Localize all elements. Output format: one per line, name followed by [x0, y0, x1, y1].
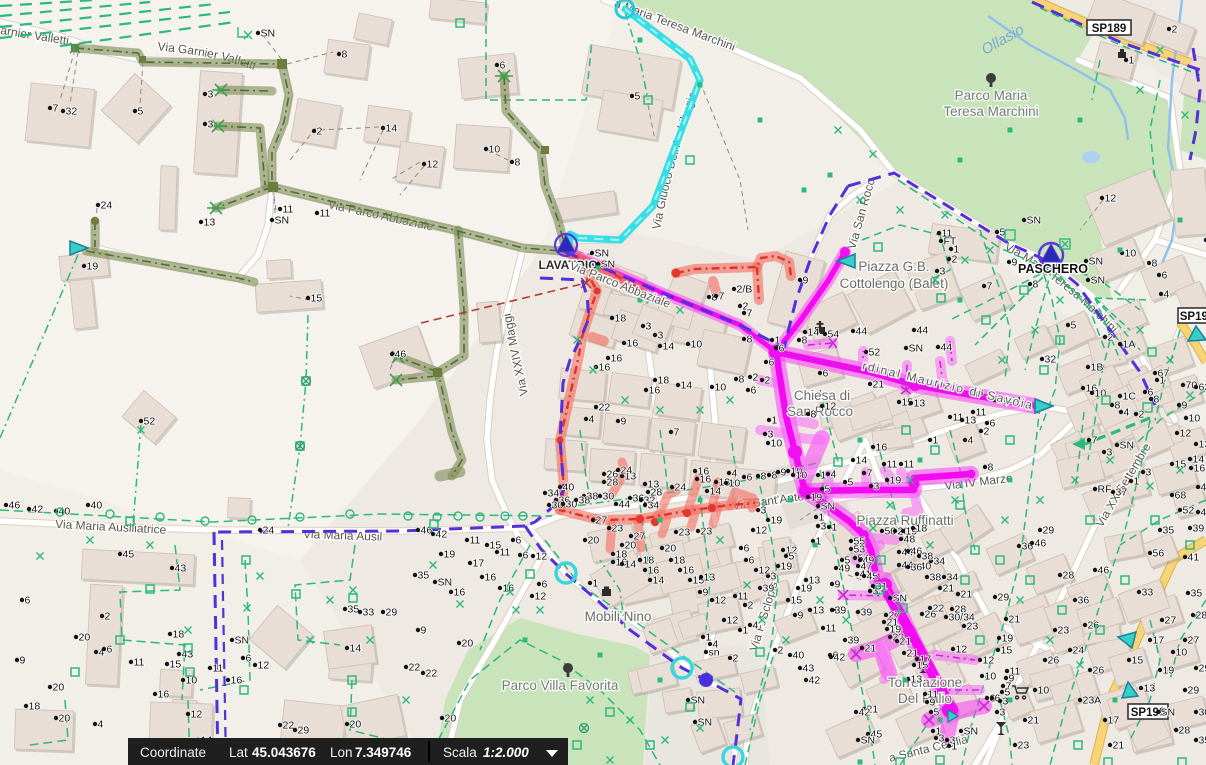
svg-text:1: 1 — [821, 470, 827, 482]
svg-text:46: 46 — [395, 349, 407, 361]
svg-text:20: 20 — [53, 682, 65, 694]
svg-text:13: 13 — [1199, 439, 1206, 451]
svg-text:11: 11 — [213, 663, 224, 675]
svg-text:23: 23 — [612, 523, 624, 535]
svg-text:16: 16 — [700, 474, 712, 486]
svg-text:3: 3 — [761, 505, 767, 517]
svg-text:13: 13 — [1144, 683, 1156, 695]
svg-text:43: 43 — [175, 563, 187, 575]
svg-text:16: 16 — [649, 385, 661, 397]
svg-text:10: 10 — [715, 382, 727, 394]
svg-text:14: 14 — [386, 123, 398, 135]
svg-text:9: 9 — [803, 275, 809, 287]
svg-text:23: 23 — [967, 621, 979, 633]
svg-text:2: 2 — [1108, 332, 1114, 344]
svg-text:7: 7 — [987, 281, 993, 293]
svg-text:8: 8 — [761, 471, 767, 483]
svg-text:4: 4 — [1164, 289, 1170, 301]
svg-text:6: 6 — [516, 535, 522, 547]
svg-text:11: 11 — [826, 623, 837, 635]
svg-text:3: 3 — [208, 89, 214, 101]
svg-text:8: 8 — [1115, 400, 1121, 412]
svg-text:6: 6 — [107, 644, 113, 656]
svg-text:21: 21 — [865, 643, 877, 655]
svg-text:SN: SN — [909, 343, 924, 355]
svg-text:9: 9 — [703, 587, 709, 599]
svg-text:1: 1 — [743, 625, 749, 637]
svg-text:2/B: 2/B — [737, 284, 753, 296]
svg-text:Piazza G.B.: Piazza G.B. — [858, 259, 929, 274]
svg-text:11: 11 — [887, 459, 898, 471]
svg-text:42: 42 — [32, 504, 44, 516]
svg-text:2: 2 — [733, 653, 739, 665]
svg-text:13: 13 — [911, 674, 923, 686]
svg-text:56: 56 — [1153, 548, 1165, 560]
svg-text:44: 44 — [856, 326, 868, 338]
svg-text:24: 24 — [1073, 645, 1085, 657]
svg-text:6: 6 — [1162, 270, 1168, 282]
svg-text:8: 8 — [1033, 279, 1039, 291]
svg-text:7: 7 — [719, 291, 725, 303]
svg-text:27: 27 — [1188, 635, 1200, 647]
svg-text:68: 68 — [1175, 490, 1187, 502]
svg-text:10: 10 — [1125, 248, 1137, 260]
svg-text:SN: SN — [1027, 215, 1042, 227]
svg-text:5: 5 — [789, 551, 795, 563]
svg-text:45.043676: 45.043676 — [252, 745, 316, 760]
svg-text:10: 10 — [985, 671, 997, 683]
svg-text:15: 15 — [170, 659, 182, 671]
svg-text:48: 48 — [904, 534, 916, 546]
svg-text:24: 24 — [675, 482, 687, 494]
svg-text:34: 34 — [648, 500, 660, 512]
svg-text:6: 6 — [779, 343, 785, 355]
svg-text:sn: sn — [709, 647, 720, 659]
svg-text:8: 8 — [811, 409, 817, 421]
svg-text:10: 10 — [1095, 388, 1107, 400]
svg-text:42: 42 — [834, 652, 846, 664]
svg-text:3: 3 — [940, 266, 946, 278]
svg-text:Coordinate: Coordinate — [140, 745, 206, 760]
svg-text:9: 9 — [835, 579, 841, 591]
svg-text:19: 19 — [444, 549, 456, 561]
svg-text:13: 13 — [704, 572, 716, 584]
svg-text:39: 39 — [848, 635, 860, 647]
svg-text:Teresa Marchini: Teresa Marchini — [943, 104, 1038, 119]
svg-text:RF: RF — [1098, 484, 1112, 496]
svg-text:14: 14 — [663, 341, 675, 353]
svg-text:21: 21 — [961, 589, 973, 601]
svg-text:12: 12 — [715, 595, 727, 607]
svg-text:10: 10 — [1176, 647, 1188, 659]
svg-text:9: 9 — [421, 625, 427, 637]
svg-text:52: 52 — [869, 347, 881, 359]
svg-text:38: 38 — [922, 551, 934, 563]
svg-text:9: 9 — [1182, 400, 1188, 412]
svg-text:10: 10 — [691, 339, 703, 351]
svg-text:10: 10 — [489, 144, 501, 156]
svg-text:46: 46 — [1098, 565, 1110, 577]
svg-text:16: 16 — [611, 353, 623, 365]
svg-text:SN: SN — [1089, 256, 1104, 268]
svg-text:20: 20 — [445, 713, 457, 725]
svg-text:7: 7 — [53, 103, 59, 115]
svg-text:8: 8 — [739, 374, 745, 386]
svg-text:24: 24 — [263, 525, 275, 537]
svg-text:52: 52 — [144, 416, 156, 428]
svg-text:2: 2 — [778, 645, 784, 657]
svg-text:43: 43 — [803, 663, 815, 675]
svg-text:26: 26 — [1093, 665, 1105, 677]
svg-text:18: 18 — [615, 313, 627, 325]
svg-text:5: 5 — [825, 484, 831, 496]
svg-text:20: 20 — [59, 713, 71, 725]
svg-text:10: 10 — [1038, 685, 1050, 697]
svg-text:46: 46 — [9, 500, 21, 512]
svg-text:12: 12 — [727, 615, 739, 627]
svg-text:26: 26 — [925, 609, 937, 621]
svg-text:9: 9 — [1012, 257, 1018, 269]
svg-text:11: 11 — [134, 657, 145, 669]
svg-text:21: 21 — [943, 583, 955, 595]
svg-text:7: 7 — [747, 308, 753, 320]
svg-text:29: 29 — [1188, 685, 1200, 697]
svg-text:39: 39 — [1193, 523, 1205, 535]
svg-text:49: 49 — [839, 563, 851, 575]
svg-text:SN: SN — [893, 593, 908, 605]
svg-text:12: 12 — [956, 644, 968, 656]
svg-text:32: 32 — [1045, 354, 1057, 366]
svg-text:13: 13 — [204, 217, 216, 229]
svg-text:Torrefazione: Torrefazione — [888, 675, 962, 690]
svg-text:4: 4 — [968, 435, 974, 447]
svg-text:15: 15 — [791, 595, 803, 607]
svg-text:4: 4 — [589, 414, 595, 426]
svg-text:21: 21 — [1028, 715, 1040, 727]
svg-text:40: 40 — [91, 500, 103, 512]
svg-text:2: 2 — [765, 375, 771, 387]
svg-text:29: 29 — [1199, 663, 1206, 675]
svg-text:29: 29 — [386, 607, 398, 619]
svg-text:36: 36 — [1078, 595, 1090, 607]
svg-text:SN: SN — [275, 215, 290, 227]
svg-text:15: 15 — [1132, 655, 1144, 667]
svg-text:12: 12 — [535, 591, 547, 603]
svg-text:27: 27 — [596, 515, 608, 527]
svg-text:1A: 1A — [1123, 339, 1136, 351]
svg-text:20: 20 — [462, 638, 474, 650]
svg-text:2: 2 — [748, 600, 754, 612]
svg-text:PASCHERO: PASCHERO — [1018, 262, 1088, 276]
svg-text:2: 2 — [317, 126, 323, 138]
svg-text:16: 16 — [485, 572, 497, 584]
svg-text:SP190: SP190 — [1180, 311, 1206, 323]
svg-text:35: 35 — [1199, 735, 1206, 747]
svg-text:14: 14 — [350, 643, 362, 655]
svg-text:37: 37 — [1116, 487, 1128, 499]
svg-text:44: 44 — [619, 499, 631, 511]
svg-text:36: 36 — [911, 562, 923, 574]
svg-text:SN: SN — [1091, 275, 1106, 287]
svg-text:42: 42 — [809, 675, 821, 687]
svg-text:35: 35 — [1191, 588, 1203, 600]
svg-text:1: 1 — [1129, 55, 1135, 67]
svg-text:1: 1 — [1134, 476, 1140, 488]
svg-text:Chiesa di: Chiesa di — [794, 388, 850, 403]
svg-text:39: 39 — [835, 605, 847, 617]
svg-text:6: 6 — [246, 653, 252, 665]
svg-text:16: 16 — [599, 362, 611, 374]
svg-text:16: 16 — [454, 587, 466, 599]
svg-text:24: 24 — [101, 200, 113, 212]
svg-text:8: 8 — [988, 462, 994, 474]
svg-text:12: 12 — [756, 525, 768, 537]
svg-text:16: 16 — [231, 675, 243, 687]
svg-text:11: 11 — [470, 535, 481, 547]
svg-text:14: 14 — [710, 486, 722, 498]
svg-text:SN: SN — [235, 635, 250, 647]
svg-text:16: 16 — [158, 689, 170, 701]
svg-text:38: 38 — [579, 495, 591, 507]
svg-text:SN: SN — [438, 577, 453, 589]
svg-text:2: 2 — [1139, 409, 1145, 421]
svg-text:1: 1 — [1160, 375, 1166, 387]
svg-text:1: 1 — [832, 522, 838, 534]
svg-text:41: 41 — [1188, 552, 1200, 564]
svg-text:6: 6 — [25, 595, 31, 607]
svg-text:33: 33 — [1142, 587, 1154, 599]
svg-text:54: 54 — [828, 329, 840, 341]
svg-text:7: 7 — [1092, 435, 1098, 447]
svg-text:1:2.000: 1:2.000 — [483, 745, 529, 760]
svg-text:22: 22 — [409, 662, 421, 674]
svg-text:23A: 23A — [1083, 695, 1102, 707]
svg-text:6: 6 — [747, 472, 753, 484]
svg-text:4: 4 — [831, 469, 837, 481]
svg-text:23: 23 — [679, 527, 691, 539]
svg-text:15: 15 — [1001, 645, 1013, 657]
svg-text:8: 8 — [802, 335, 808, 347]
svg-text:1: 1 — [772, 415, 778, 427]
svg-text:SN: SN — [861, 735, 876, 747]
svg-text:6: 6 — [823, 368, 829, 380]
svg-text:5: 5 — [635, 91, 641, 103]
svg-text:12: 12 — [759, 565, 771, 577]
svg-text:12: 12 — [427, 159, 439, 171]
svg-text:3: 3 — [1000, 707, 1006, 719]
svg-text:7.349746: 7.349746 — [355, 745, 412, 760]
svg-text:11: 11 — [500, 547, 511, 559]
svg-text:5: 5 — [1071, 320, 1077, 332]
svg-text:13: 13 — [813, 605, 825, 617]
svg-text:6: 6 — [523, 550, 529, 562]
svg-text:10: 10 — [729, 478, 741, 490]
svg-text:29: 29 — [998, 592, 1010, 604]
svg-text:12: 12 — [1180, 428, 1192, 440]
svg-text:29: 29 — [1043, 525, 1055, 537]
svg-text:21: 21 — [1009, 614, 1021, 626]
svg-text:42: 42 — [859, 707, 871, 719]
svg-text:17: 17 — [1108, 715, 1120, 727]
svg-text:3: 3 — [939, 733, 945, 745]
svg-text:13: 13 — [809, 575, 821, 587]
svg-text:4: 4 — [753, 620, 759, 632]
svg-text:26: 26 — [1048, 655, 1060, 667]
svg-text:21: 21 — [873, 379, 885, 391]
svg-text:19: 19 — [87, 261, 99, 273]
svg-text:Via Maria Ausil: Via Maria Ausil — [303, 527, 383, 544]
svg-text:20: 20 — [665, 543, 677, 555]
svg-text:11: 11 — [976, 407, 987, 419]
svg-text:19: 19 — [1163, 665, 1175, 677]
svg-text:14: 14 — [856, 455, 868, 467]
svg-text:2: 2 — [105, 611, 111, 623]
svg-text:28: 28 — [1196, 610, 1206, 622]
svg-text:6: 6 — [749, 555, 755, 567]
svg-text:17: 17 — [473, 558, 485, 570]
svg-text:6: 6 — [542, 579, 548, 591]
svg-text:10: 10 — [771, 438, 783, 450]
svg-text:11: 11 — [904, 459, 915, 471]
svg-text:14: 14 — [625, 559, 637, 571]
svg-text:11: 11 — [320, 208, 331, 220]
svg-text:6: 6 — [769, 357, 775, 369]
svg-text:18: 18 — [916, 523, 928, 535]
svg-text:3: 3 — [658, 330, 664, 342]
svg-text:14: 14 — [653, 575, 665, 587]
svg-text:1: 1 — [933, 435, 939, 447]
svg-text:Parco Villa Favorita: Parco Villa Favorita — [502, 678, 619, 693]
svg-text:44: 44 — [917, 325, 929, 337]
svg-text:20: 20 — [588, 535, 600, 547]
svg-text:21: 21 — [1113, 740, 1125, 752]
svg-text:12: 12 — [536, 551, 548, 563]
svg-text:4: 4 — [1124, 407, 1130, 419]
svg-text:16: 16 — [1194, 463, 1206, 475]
svg-text:2: 2 — [984, 426, 990, 438]
svg-text:15: 15 — [917, 660, 929, 672]
svg-text:4: 4 — [1201, 482, 1206, 494]
svg-text:10: 10 — [796, 470, 808, 482]
svg-text:7: 7 — [674, 427, 680, 439]
svg-text:40: 40 — [793, 650, 805, 662]
svg-text:Mobili Nino: Mobili Nino — [585, 609, 652, 624]
svg-text:21: 21 — [900, 636, 912, 648]
svg-text:33: 33 — [363, 607, 375, 619]
svg-text:41: 41 — [1201, 507, 1206, 519]
svg-text:35: 35 — [348, 604, 360, 616]
svg-text:2: 2 — [753, 372, 759, 384]
svg-text:1C: 1C — [1123, 391, 1137, 403]
svg-text:SN: SN — [691, 695, 706, 707]
svg-text:27: 27 — [1165, 615, 1177, 627]
svg-text:Lat: Lat — [229, 745, 248, 760]
svg-text:SN: SN — [261, 28, 276, 40]
svg-text:24: 24 — [621, 465, 633, 477]
svg-text:40: 40 — [563, 482, 575, 494]
svg-text:Scala: Scala — [443, 745, 477, 760]
svg-text:16: 16 — [627, 338, 639, 350]
svg-text:8: 8 — [1152, 258, 1158, 270]
svg-text:15: 15 — [311, 293, 323, 305]
svg-text:32: 32 — [66, 106, 78, 118]
svg-text:3: 3 — [874, 481, 880, 493]
svg-text:8: 8 — [342, 49, 348, 61]
svg-text:Lon: Lon — [330, 745, 353, 760]
svg-text:38: 38 — [930, 572, 942, 584]
svg-text:35: 35 — [418, 570, 430, 582]
svg-text:30: 30 — [1199, 707, 1206, 719]
svg-text:6: 6 — [751, 385, 757, 397]
svg-text:SN: SN — [1161, 707, 1176, 719]
svg-text:20: 20 — [625, 540, 637, 552]
svg-text:2: 2 — [952, 254, 958, 266]
svg-text:9: 9 — [20, 655, 26, 667]
svg-text:42: 42 — [436, 529, 448, 541]
svg-text:19: 19 — [771, 515, 783, 527]
svg-text:14: 14 — [681, 380, 693, 392]
svg-text:19: 19 — [1002, 633, 1014, 645]
svg-text:8: 8 — [515, 157, 521, 169]
svg-text:9: 9 — [781, 467, 787, 479]
svg-text:1: 1 — [593, 578, 599, 590]
svg-text:6: 6 — [990, 418, 996, 430]
svg-text:9: 9 — [621, 416, 627, 428]
svg-text:7: 7 — [867, 468, 873, 480]
svg-text:30: 30 — [603, 491, 615, 503]
svg-text:22: 22 — [426, 668, 438, 680]
svg-text:3: 3 — [821, 521, 827, 533]
svg-text:16: 16 — [876, 442, 888, 454]
svg-text:5: 5 — [138, 106, 144, 118]
svg-text:28: 28 — [1179, 725, 1191, 737]
svg-text:29: 29 — [298, 725, 310, 737]
svg-text:2: 2 — [1172, 24, 1178, 36]
svg-text:12: 12 — [258, 660, 270, 672]
svg-text:34: 34 — [934, 556, 946, 568]
svg-text:1B: 1B — [1091, 362, 1104, 374]
svg-text:12: 12 — [191, 709, 203, 721]
svg-text:12: 12 — [1105, 193, 1117, 205]
svg-text:Parco Maria: Parco Maria — [955, 88, 1028, 103]
svg-text:6: 6 — [744, 543, 750, 555]
svg-text:18: 18 — [173, 629, 185, 641]
svg-text:23: 23 — [701, 526, 713, 538]
svg-text:28: 28 — [607, 477, 619, 489]
svg-text:SN: SN — [1120, 440, 1135, 452]
svg-text:22: 22 — [283, 720, 295, 732]
svg-text:SP189: SP189 — [1092, 23, 1127, 35]
svg-text:23: 23 — [1058, 625, 1070, 637]
svg-text:13: 13 — [914, 398, 926, 410]
svg-text:35: 35 — [1163, 525, 1175, 537]
svg-text:5: 5 — [848, 477, 854, 489]
svg-text:1: 1 — [952, 741, 958, 753]
svg-text:5: 5 — [934, 707, 940, 719]
svg-text:SN: SN — [601, 259, 616, 271]
svg-text:8: 8 — [747, 334, 753, 346]
svg-text:3: 3 — [1146, 467, 1152, 479]
svg-text:17: 17 — [1153, 635, 1165, 647]
svg-text:46: 46 — [1035, 538, 1047, 550]
svg-text:28: 28 — [1063, 570, 1075, 582]
svg-text:8: 8 — [1154, 394, 1160, 406]
svg-text:9: 9 — [798, 610, 804, 622]
svg-text:10: 10 — [1189, 413, 1201, 425]
svg-text:14: 14 — [808, 327, 820, 339]
svg-text:1: 1 — [706, 632, 712, 644]
svg-text:4: 4 — [98, 719, 104, 731]
